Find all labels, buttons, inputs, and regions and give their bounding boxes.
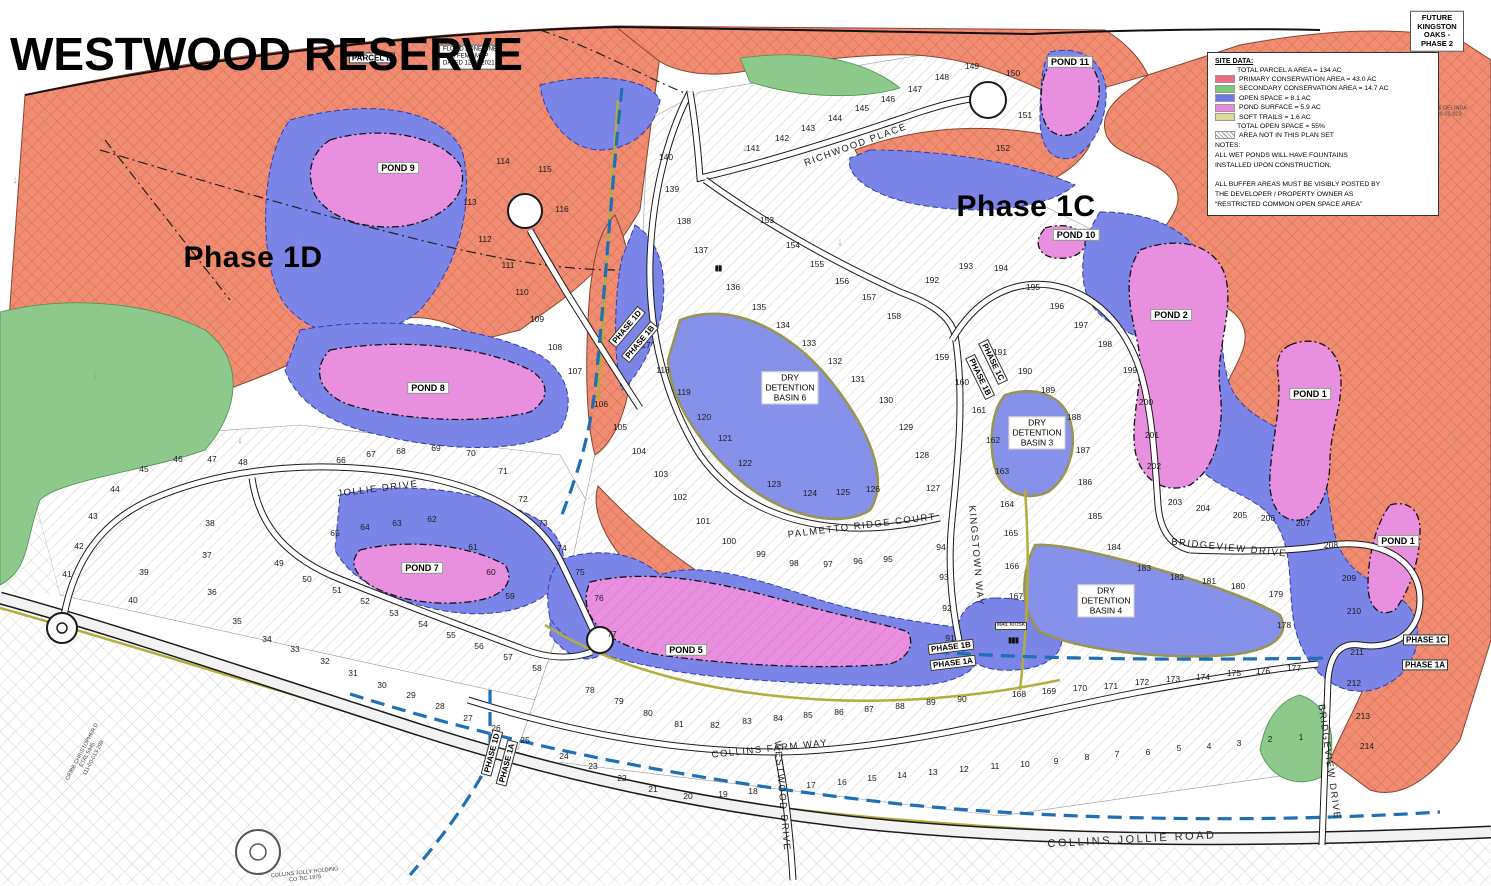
lot-number-188: 188 [1067, 413, 1081, 422]
lot-number-204: 204 [1196, 504, 1210, 513]
lot-number-169: 169 [1042, 687, 1056, 696]
lot-number-45: 45 [139, 465, 148, 474]
lot-number-66: 66 [336, 456, 345, 465]
lot-number-162: 162 [986, 436, 1000, 445]
lot-number-35: 35 [232, 617, 241, 626]
legend-row-label: SOFT TRAILS = 1.6 AC [1239, 114, 1311, 121]
lot-number-202: 202 [1147, 462, 1161, 471]
lot-number-213: 213 [1356, 712, 1370, 721]
lot-number-198: 198 [1098, 340, 1112, 349]
pond-9-label: POND 9 [377, 162, 419, 174]
lot-number-93: 93 [939, 573, 948, 582]
future-kingston-oaks-label: FUTURE KINGSTON OAKS - PHASE 2 [1410, 11, 1464, 52]
lot-number-75: 75 [575, 568, 584, 577]
lot-number-79: 79 [614, 697, 623, 706]
lot-number-97: 97 [823, 560, 832, 569]
lot-number-42: 42 [74, 542, 83, 551]
lot-number-196: 196 [1050, 302, 1064, 311]
lot-number-206: 206 [1261, 514, 1275, 523]
lot-number-9: 9 [1054, 757, 1059, 766]
lot-number-16: 16 [837, 778, 846, 787]
lot-number-68: 68 [396, 447, 405, 456]
lot-number-96: 96 [853, 557, 862, 566]
lot-number-2: 2 [1268, 735, 1273, 744]
lot-number-199: 199 [1123, 366, 1137, 375]
lot-number-39: 39 [139, 568, 148, 577]
lot-number-113: 113 [463, 198, 477, 207]
lot-number-128: 128 [915, 451, 929, 460]
lot-number-30: 30 [377, 681, 386, 690]
lot-number-160: 160 [955, 378, 969, 387]
lot-number-137: 137 [694, 246, 708, 255]
lot-number-95: 95 [883, 555, 892, 564]
lot-number-133: 133 [802, 339, 816, 348]
lot-number-154: 154 [786, 241, 800, 250]
legend-row: TOTAL OPEN SPACE = 55% [1215, 123, 1431, 130]
wetland-arrow-icon: ↓ [42, 109, 48, 121]
lot-number-80: 80 [643, 709, 652, 718]
lot-number-197: 197 [1074, 321, 1088, 330]
legend-row: TOTAL PARCEL A AREA = 134 AC [1215, 67, 1431, 74]
lot-number-52: 52 [360, 597, 369, 606]
lot-number-28: 28 [435, 702, 444, 711]
lot-number-207: 207 [1296, 519, 1310, 528]
legend-row: PRIMARY CONSERVATION AREA = 43.0 AC [1215, 75, 1431, 83]
lot-number-36: 36 [207, 588, 216, 597]
pond-10-label: POND 10 [1053, 229, 1100, 241]
lot-number-58: 58 [532, 664, 541, 673]
lot-number-107: 107 [568, 367, 582, 376]
lot-number-168: 168 [1012, 690, 1026, 699]
lot-number-209: 209 [1342, 574, 1356, 583]
lot-number-156: 156 [835, 277, 849, 286]
lot-number-193: 193 [959, 262, 973, 271]
lot-number-64: 64 [360, 523, 369, 532]
lot-number-31: 31 [348, 669, 357, 678]
legend-row-label: POND SURFACE = 5.9 AC [1239, 104, 1321, 111]
wetland-arrow-icon: ↓ [542, 64, 548, 76]
lot-number-65: 65 [330, 529, 339, 538]
lot-number-67: 67 [366, 450, 375, 459]
lot-number-141: 141 [746, 144, 760, 153]
lot-number-124: 124 [803, 489, 817, 498]
lot-number-5: 5 [1177, 744, 1182, 753]
lot-number-110: 110 [515, 288, 529, 297]
lot-number-140: 140 [659, 153, 673, 162]
lot-number-147: 147 [908, 85, 922, 94]
lot-number-187: 187 [1076, 446, 1090, 455]
lot-number-131: 131 [851, 375, 865, 384]
lot-number-61: 61 [468, 543, 477, 552]
lot-number-121: 121 [718, 434, 732, 443]
lot-number-99: 99 [756, 550, 765, 559]
pond-7-label: POND 7 [401, 562, 443, 574]
lot-number-189: 189 [1041, 386, 1055, 395]
site-data-legend: SITE DATA: TOTAL PARCEL A AREA = 134 ACP… [1207, 52, 1439, 216]
lot-number-18: 18 [748, 787, 757, 796]
lot-number-85: 85 [803, 711, 812, 720]
lot-number-83: 83 [742, 717, 751, 726]
lot-number-125: 125 [836, 488, 850, 497]
lot-number-166: 166 [1005, 562, 1019, 571]
lot-number-100: 100 [722, 537, 736, 546]
lot-number-41: 41 [62, 570, 71, 579]
legend-row-label: SECONDARY CONSERVATION AREA = 14.7 AC [1239, 85, 1389, 92]
wetland-arrow-icon: ↓ [12, 174, 18, 186]
lot-number-179: 179 [1269, 590, 1283, 599]
phase-tag-1c-east: PHASE 1C [1403, 634, 1449, 645]
lot-number-111: 111 [502, 261, 515, 270]
lot-number-174: 174 [1196, 673, 1210, 682]
lot-number-92: 92 [942, 604, 951, 613]
pond-11-label: POND 11 [1047, 56, 1093, 68]
lot-number-123: 123 [767, 480, 781, 489]
phase-tag-1a-east: PHASE 1A [1402, 659, 1448, 670]
lot-number-59: 59 [505, 592, 514, 601]
lot-number-180: 180 [1231, 582, 1245, 591]
lot-number-182: 182 [1170, 573, 1184, 582]
pond-1-south-label: POND 1 [1377, 535, 1419, 547]
wetland-arrow-icon: ↓ [1417, 714, 1423, 726]
lot-number-94: 94 [936, 543, 945, 552]
legend-row: POND SURFACE = 5.9 AC [1215, 104, 1431, 112]
lot-number-63: 63 [392, 519, 401, 528]
lot-number-82: 82 [710, 721, 719, 730]
lot-number-87: 87 [864, 705, 873, 714]
lot-number-114: 114 [496, 157, 510, 166]
lot-number-195: 195 [1026, 283, 1040, 292]
lot-number-143: 143 [801, 124, 815, 133]
lot-number-120: 120 [697, 413, 711, 422]
lot-number-194: 194 [994, 264, 1008, 273]
lot-number-77: 77 [607, 630, 616, 639]
lot-number-76: 76 [594, 594, 603, 603]
lot-number-203: 203 [1168, 498, 1182, 507]
lot-number-119: 119 [677, 388, 691, 397]
lot-number-184: 184 [1107, 543, 1121, 552]
lot-number-72: 72 [518, 495, 527, 504]
lot-number-109: 109 [530, 315, 544, 324]
lot-number-7: 7 [1115, 750, 1120, 759]
lot-number-14: 14 [897, 771, 906, 780]
lot-number-112: 112 [478, 235, 492, 244]
lot-number-138: 138 [677, 217, 691, 226]
legend-notes: NOTES: ALL WET PONDS WILL HAVE FOUNTAINS… [1215, 141, 1431, 210]
lot-number-103: 103 [654, 470, 668, 479]
lot-number-159: 159 [935, 353, 949, 362]
lot-number-171: 171 [1104, 682, 1118, 691]
lot-number-157: 157 [862, 293, 876, 302]
lot-number-122: 122 [738, 459, 752, 468]
lot-number-102: 102 [673, 493, 687, 502]
lot-number-116: 116 [555, 205, 569, 214]
lot-number-38: 38 [205, 519, 214, 528]
legend-row-label: TOTAL PARCEL A AREA = 134 AC [1237, 67, 1342, 74]
legend-swatch-pink [1215, 104, 1235, 112]
page-title: WESTWOOD RESERVE [10, 27, 523, 81]
lot-number-212: 212 [1347, 679, 1361, 688]
mail-kiosk-icon: ▮▮▮ [1008, 635, 1018, 644]
legend-swatch-blue [1215, 94, 1235, 102]
pond-1-label: POND 1 [1289, 388, 1331, 400]
lot-number-78: 78 [585, 686, 594, 695]
lot-number-23: 23 [588, 762, 597, 771]
lot-number-3: 3 [1237, 739, 1242, 748]
lot-number-201: 201 [1145, 431, 1159, 440]
lot-number-34: 34 [262, 635, 271, 644]
lot-number-126: 126 [866, 485, 880, 494]
lot-number-185: 185 [1088, 512, 1102, 521]
legend-row-label: AREA NOT IN THIS PLAN SET [1239, 132, 1334, 139]
lot-number-27: 27 [463, 714, 472, 723]
lot-number-186: 186 [1078, 478, 1092, 487]
lot-number-115: 115 [538, 165, 552, 174]
lot-number-44: 44 [110, 485, 119, 494]
lot-number-183: 183 [1137, 564, 1151, 573]
lot-number-46: 46 [173, 455, 182, 464]
lot-number-19: 19 [718, 790, 727, 799]
pond-9-shape [310, 133, 462, 227]
wetland-arrow-icon: ↓ [837, 236, 843, 248]
lot-number-70: 70 [466, 449, 475, 458]
wetland-arrow-icon: ↓ [87, 264, 93, 276]
lot-number-132: 132 [828, 357, 842, 366]
lot-number-130: 130 [879, 396, 893, 405]
lot-number-178: 178 [1277, 621, 1291, 630]
pond-2-shape [1129, 243, 1228, 488]
legend-swatch-olive [1215, 113, 1235, 121]
lot-number-29: 29 [406, 691, 415, 700]
lot-number-176: 176 [1256, 667, 1270, 676]
lot-number-51: 51 [332, 586, 341, 595]
lot-number-190: 190 [1018, 367, 1032, 376]
legend-row-label: OPEN SPACE = 8.1 AC [1239, 95, 1311, 102]
legend-row: SECONDARY CONSERVATION AREA = 14.7 AC [1215, 85, 1431, 93]
lot-number-136: 136 [726, 283, 740, 292]
lot-number-161: 161 [972, 406, 986, 415]
lot-number-4: 4 [1207, 742, 1212, 751]
lot-number-153: 153 [760, 216, 774, 225]
lot-number-86: 86 [834, 708, 843, 717]
lot-number-167: 167 [1009, 592, 1023, 601]
lot-number-148: 148 [935, 73, 949, 82]
wetland-arrow-icon: ↓ [1227, 246, 1233, 258]
lot-number-21: 21 [648, 785, 657, 794]
lot-number-175: 175 [1227, 669, 1241, 678]
lot-number-49: 49 [274, 559, 283, 568]
lot-number-155: 155 [810, 260, 824, 269]
lot-number-62: 62 [427, 515, 436, 524]
lot-number-211: 211 [1350, 648, 1364, 657]
lot-number-98: 98 [789, 559, 798, 568]
lot-number-164: 164 [1000, 500, 1014, 509]
lot-number-151: 151 [1018, 111, 1032, 120]
lot-number-214: 214 [1360, 742, 1374, 751]
legend-row: OPEN SPACE = 8.1 AC [1215, 94, 1431, 102]
legend-row: AREA NOT IN THIS PLAN SET [1215, 131, 1431, 139]
lot-number-10: 10 [1020, 760, 1029, 769]
wetland-arrow-icon: ↓ [1032, 136, 1038, 148]
lot-number-118: 118 [656, 366, 670, 375]
lot-number-8: 8 [1085, 753, 1090, 762]
lot-number-32: 32 [320, 657, 329, 666]
lot-number-60: 60 [486, 568, 495, 577]
lot-number-54: 54 [418, 620, 427, 629]
dry-detention-basin-3-label: DRY DETENTION BASIN 3 [1008, 416, 1065, 449]
phase-1c-heading: Phase 1C [956, 190, 1095, 225]
lot-number-88: 88 [895, 702, 904, 711]
lot-number-37: 37 [202, 551, 211, 560]
lot-number-13: 13 [928, 768, 937, 777]
lot-number-173: 173 [1166, 675, 1180, 684]
lot-number-127: 127 [926, 484, 940, 493]
lot-number-15: 15 [867, 774, 876, 783]
lot-number-53: 53 [389, 609, 398, 618]
lot-number-177: 177 [1287, 664, 1301, 673]
lot-number-135: 135 [752, 303, 766, 312]
wetland-arrow-icon: ↓ [92, 369, 98, 381]
lot-number-74: 74 [557, 544, 566, 553]
pond-8-label: POND 8 [407, 382, 449, 394]
lot-number-134: 134 [776, 321, 790, 330]
lot-number-40: 40 [128, 596, 137, 605]
lot-number-152: 152 [996, 144, 1010, 153]
lot-number-139: 139 [665, 185, 679, 194]
lot-number-71: 71 [498, 467, 507, 476]
legend-row: SOFT TRAILS = 1.6 AC [1215, 113, 1431, 121]
lot-number-200: 200 [1139, 398, 1153, 407]
lot-number-57: 57 [503, 653, 512, 662]
lot-number-158: 158 [887, 312, 901, 321]
lot-number-106: 106 [594, 400, 608, 409]
lot-number-17: 17 [806, 781, 815, 790]
lot-number-25: 25 [520, 736, 529, 745]
legend-rows: TOTAL PARCEL A AREA = 134 ACPRIMARY CONS… [1215, 67, 1431, 140]
lot-number-90: 90 [957, 695, 966, 704]
legend-heading: SITE DATA: [1215, 58, 1431, 65]
legend-swatch-hatch [1215, 131, 1235, 139]
lot-number-69: 69 [431, 444, 440, 453]
lot-number-205: 205 [1233, 511, 1247, 520]
pond-2-label: POND 2 [1150, 309, 1192, 321]
kiosk-icon-center: ▮▮ [715, 263, 722, 272]
lot-number-165: 165 [1004, 529, 1018, 538]
lot-number-150: 150 [1006, 69, 1020, 78]
lot-number-56: 56 [474, 642, 483, 651]
dry-detention-basin-4-label: DRY DETENTION BASIN 4 [1077, 584, 1134, 617]
lot-number-142: 142 [775, 134, 789, 143]
lot-number-89: 89 [926, 698, 935, 707]
lot-number-208: 208 [1324, 541, 1338, 550]
lot-number-48: 48 [238, 458, 247, 467]
lot-number-149: 149 [965, 62, 979, 71]
lot-number-11: 11 [991, 762, 1000, 771]
site-plan-page: { "title": "WESTWOOD RESERVE", "colors":… [0, 0, 1491, 885]
lot-number-47: 47 [207, 455, 216, 464]
legend-row-label: PRIMARY CONSERVATION AREA = 43.0 AC [1239, 76, 1376, 83]
wetland-arrow-icon: ↓ [877, 142, 883, 154]
legend-row-label: TOTAL OPEN SPACE = 55% [1237, 123, 1325, 130]
legend-swatch-green [1215, 85, 1235, 93]
lot-number-81: 81 [674, 720, 683, 729]
lot-number-12: 12 [959, 765, 968, 774]
lot-number-172: 172 [1135, 678, 1149, 687]
lot-number-33: 33 [290, 645, 299, 654]
lot-number-108: 108 [548, 343, 562, 352]
legend-swatch-red [1215, 75, 1235, 83]
lot-number-84: 84 [773, 714, 782, 723]
lot-number-55: 55 [446, 631, 455, 640]
wetland-arrow-icon: ↓ [1452, 434, 1458, 446]
pond-5-label: POND 5 [665, 644, 707, 656]
wetland-arrow-icon: ↓ [467, 236, 473, 248]
lot-number-105: 105 [613, 423, 627, 432]
mail-kiosk-label: MAIL KIOSK [995, 622, 1027, 630]
lot-number-6: 6 [1146, 748, 1151, 757]
lot-number-20: 20 [683, 792, 692, 801]
lot-number-101: 101 [696, 517, 710, 526]
lot-number-192: 192 [925, 276, 939, 285]
lot-number-146: 146 [881, 95, 895, 104]
lot-number-170: 170 [1073, 684, 1087, 693]
lot-number-50: 50 [302, 575, 311, 584]
phase-1d-heading: Phase 1D [183, 241, 322, 276]
lot-number-22: 22 [617, 774, 626, 783]
lot-number-1: 1 [1299, 733, 1304, 742]
lot-number-181: 181 [1202, 577, 1216, 586]
wetland-arrow-icon: ↓ [332, 539, 338, 551]
lot-number-104: 104 [632, 447, 646, 456]
wetland-arrow-icon: ↓ [237, 434, 243, 446]
lot-number-210: 210 [1347, 607, 1361, 616]
lot-number-43: 43 [88, 512, 97, 521]
lot-number-24: 24 [559, 752, 568, 761]
lot-number-163: 163 [995, 467, 1009, 476]
dry-detention-basin-6-label: DRY DETENTION BASIN 6 [761, 371, 818, 404]
lot-number-129: 129 [899, 423, 913, 432]
lot-number-73: 73 [538, 519, 547, 528]
wetland-arrow-icon: ↓ [177, 294, 183, 306]
lot-number-145: 145 [855, 104, 869, 113]
lot-number-144: 144 [828, 114, 842, 123]
